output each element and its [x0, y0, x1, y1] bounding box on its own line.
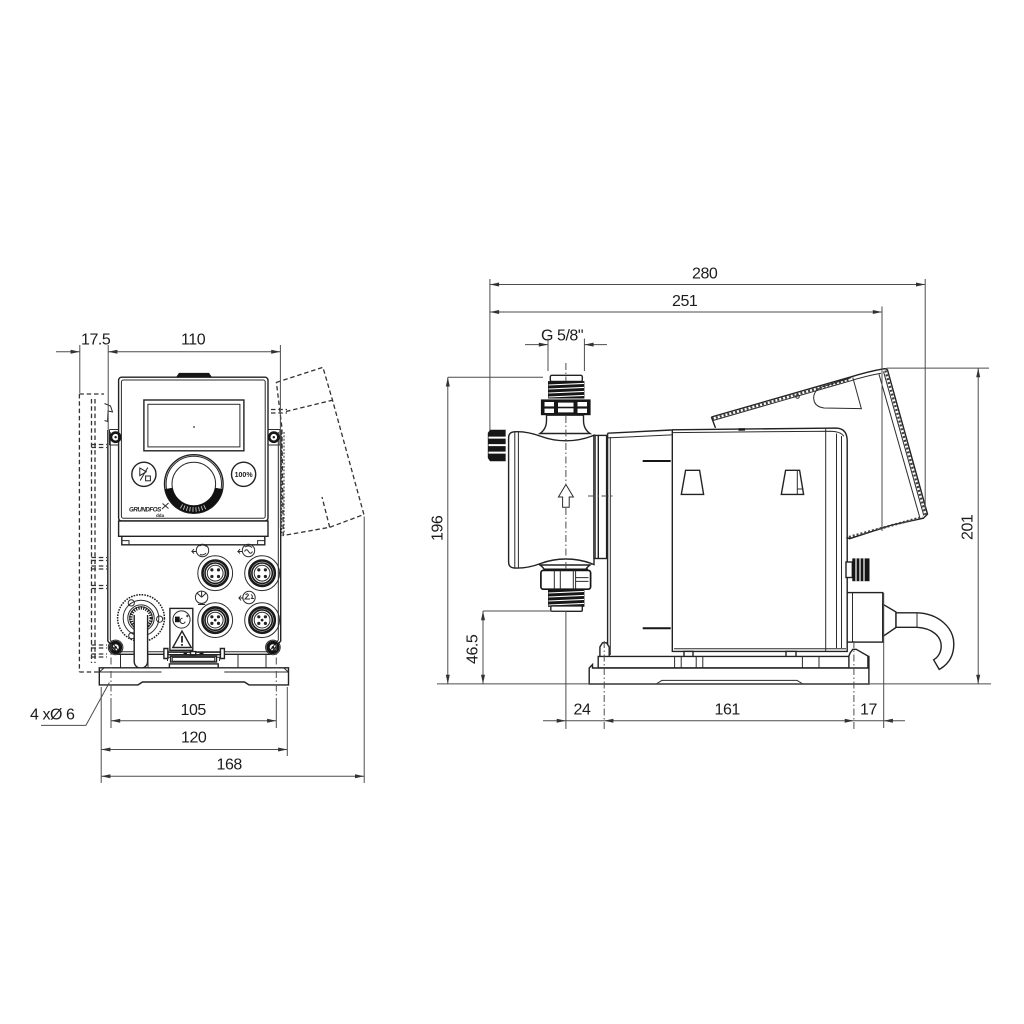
svg-text:161: 161 [715, 702, 741, 719]
svg-text:G 5/8": G 5/8" [541, 328, 583, 345]
svg-text:168: 168 [217, 757, 243, 774]
svg-text:100%: 100% [235, 472, 254, 479]
svg-text:196: 196 [430, 515, 447, 541]
svg-text:280: 280 [692, 265, 718, 282]
svg-text:17.5: 17.5 [81, 332, 111, 349]
svg-text:120: 120 [181, 730, 207, 747]
svg-text:24: 24 [574, 702, 591, 719]
svg-text:105: 105 [181, 702, 207, 719]
svg-text:4 xØ 6: 4 xØ 6 [30, 707, 75, 724]
svg-text:17: 17 [860, 702, 877, 719]
svg-text:dda: dda [156, 513, 165, 518]
svg-text:201: 201 [960, 514, 977, 540]
svg-text:46.5: 46.5 [465, 634, 482, 664]
svg-text:110: 110 [181, 332, 206, 349]
svg-text:251: 251 [672, 293, 698, 310]
